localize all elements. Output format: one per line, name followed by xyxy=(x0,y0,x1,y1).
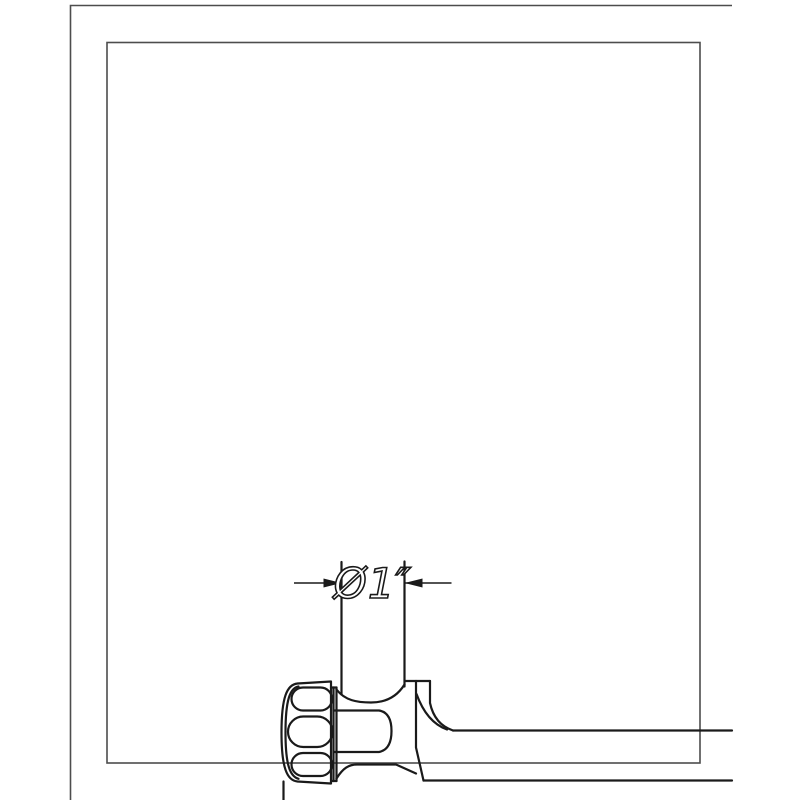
clamp-boss-outline xyxy=(334,711,392,753)
clamp-fitting xyxy=(282,681,454,800)
grip-slot-bottom xyxy=(292,753,333,776)
grip-slot-top xyxy=(292,688,333,711)
saddle-curve xyxy=(337,685,405,703)
horizontal-rail xyxy=(424,731,733,781)
sheet-border-line xyxy=(71,6,733,800)
grip-slot-middle xyxy=(288,717,333,748)
cad-drawing-page: Ø1″ xyxy=(0,0,800,800)
construction-lines xyxy=(71,6,733,800)
dimension-label: Ø1″ xyxy=(332,559,412,608)
diameter-dimension: Ø1″ xyxy=(294,559,452,608)
body-bottom-profile xyxy=(337,765,417,779)
flange-right-gusset xyxy=(430,681,453,731)
drawing-canvas: Ø1″ xyxy=(0,0,800,800)
